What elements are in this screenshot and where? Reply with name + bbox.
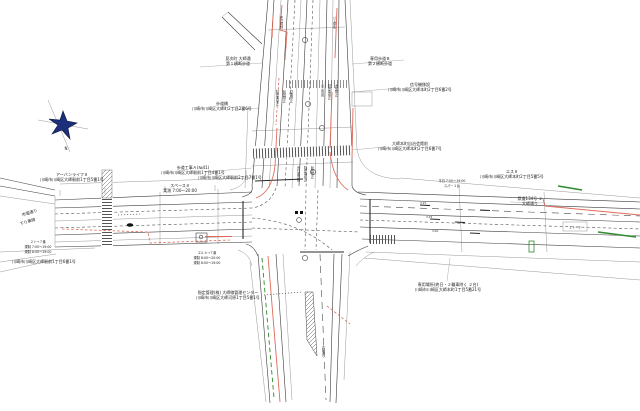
cad-geometry — [366, 252, 640, 262]
label-space-hours: 実測 7:00〜20:00 — [163, 187, 197, 193]
lane-text-v6: 大型禁止 — [334, 83, 338, 97]
cad-geometry — [0, 196, 55, 204]
road-plan-canvas: N 見次町 大師通 第１横断歩道 専用歩道Ｂ 第２横断歩道 信号機移設 川崎市川… — [0, 0, 640, 411]
cad-geometry — [55, 192, 252, 200]
cad-geometry — [302, 255, 307, 260]
label-reserved-s2: 川崎市川崎区大師本町1丁目5番21号 — [415, 286, 481, 292]
label-hours-o1: 平日 7:00〜19:00 — [439, 179, 466, 183]
label-reg-k2: 規制 7:00〜19:00 — [25, 244, 52, 249]
cad-geometry — [272, 16, 273, 38]
cad-geometry — [199, 235, 203, 239]
lane-text-v9: 転回禁止 — [310, 166, 314, 179]
annotations: 見次町 大師通 第１横断歩道 専用歩道Ｂ 第２横断歩道 信号機移設 川崎市川崎区… — [12, 15, 581, 359]
cad-geometry — [455, 222, 465, 223]
west-crosswalk — [102, 198, 112, 246]
cad-geometry — [238, 250, 252, 266]
cad-geometry — [352, 108, 353, 158]
cad-geometry — [357, 150, 400, 179]
cad-geometry — [246, 244, 258, 256]
center-symbol — [300, 211, 303, 214]
cad-geometry — [299, 0, 307, 186]
cad-geometry — [470, 233, 480, 234]
cad-geometry — [360, 227, 640, 236]
cad-geometry — [55, 202, 252, 208]
cad-geometry — [297, 218, 302, 223]
cad-geometry — [336, 254, 342, 403]
cad-geometry — [0, 186, 55, 196]
cad-geometry — [320, 254, 326, 400]
cad-geometry — [230, 170, 246, 190]
cad-geometry — [558, 186, 582, 190]
plan-drawing: N 見次町 大師通 第１横断歩道 専用歩道Ｂ 第２横断歩道 信号機移設 川崎市川… — [0, 0, 640, 411]
cad-geometry — [327, 306, 350, 324]
cad-geometry — [430, 219, 440, 220]
cad-geometry — [364, 258, 640, 280]
cad-geometry — [305, 101, 310, 106]
cad-geometry — [420, 205, 430, 206]
cad-geometry — [480, 210, 490, 211]
lane-text-v8: 駐停車禁止 — [303, 165, 307, 182]
cad-geometry — [348, 246, 368, 256]
cad-geometry — [118, 214, 140, 215]
label-reg-m3: 規制 8:00〜19:00 — [194, 260, 221, 265]
label-addr-l: 川崎市川崎区大師駅前1丁目6番1号 — [12, 258, 76, 264]
north-tick-row — [284, 80, 348, 88]
cad-geometry — [55, 229, 252, 235]
east-road — [357, 150, 640, 280]
lane-text-v3: 駐車禁止 — [289, 89, 293, 103]
lane-text-v7: 歩行者専用 — [296, 165, 300, 183]
cad-geometry — [544, 192, 547, 252]
cad-geometry — [360, 220, 640, 229]
cad-geometry — [256, 128, 277, 198]
label-shop-p-addr: 川崎市川崎区大師本町2丁目5番5号 — [480, 173, 544, 179]
cad-geometry — [305, 190, 306, 250]
label-reg-m2: 規制 8:00〜20:00 — [194, 255, 221, 260]
east-zebra — [370, 235, 396, 244]
label-reg-k1: ２ト→７番 — [30, 239, 46, 244]
compass-rose: N — [38, 100, 88, 152]
bus-marking — [127, 223, 133, 227]
cad-geometry — [362, 239, 640, 248]
lane-text-v5: 駐停車禁止 — [327, 83, 331, 100]
cad-geometry — [55, 215, 252, 221]
cad-geometry — [344, 252, 350, 380]
cad-geometry — [55, 222, 252, 228]
channel-island — [305, 292, 317, 356]
cad-geometry — [316, 190, 318, 250]
cad-geometry — [356, 252, 374, 266]
cad-geometry — [252, 228, 360, 232]
label-reg-k3: 規制 8:00〜19:00 — [25, 249, 52, 254]
leader-lines — [200, 60, 545, 281]
cad-geometry — [264, 292, 302, 295]
cad-geometry — [55, 208, 252, 214]
label-shiden-dori: 市電通り — [21, 207, 38, 218]
label-hours-o2: スパー１台 — [444, 183, 460, 188]
label-center-addr: 川崎市川崎区大師河原1丁目5番1号 — [196, 294, 260, 300]
cad-geometry — [252, 188, 276, 208]
cad-geometry — [252, 218, 332, 250]
label-hall-addr: 川崎市川崎区大師本町2丁目6番7号 — [378, 145, 442, 151]
cad-geometry — [268, 256, 280, 402]
lane-width-w3: 3.00 — [432, 229, 438, 233]
cad-geometry — [222, 12, 228, 17]
cad-geometry — [360, 213, 640, 222]
cad-geometry — [55, 242, 252, 247]
label-crosswalk2: 第２横断歩道 — [368, 60, 392, 66]
lane-text-v2: 転回禁止 — [282, 90, 286, 103]
lane-text-v1: 駐停車禁止 — [275, 89, 279, 106]
cad-geometry — [447, 258, 450, 281]
lane-text-v12: 大師通り — [321, 344, 325, 359]
label-footbridge-addr: 川崎市川崎区大師町2丁目2番6号 — [192, 105, 252, 111]
label-urbanlife-addr: 川崎市川崎区大師駅前1丁目5番1号 — [40, 176, 104, 182]
cad-geometry — [242, 186, 252, 197]
north-star-icon — [49, 111, 77, 139]
label-signal-move-addr: 川崎市川崎区大師本町2丁目6番2号 — [388, 86, 452, 92]
south-road — [250, 252, 350, 403]
lane-width-w2: 3.25 — [426, 215, 432, 219]
label-down-lane: 下り車線 — [19, 216, 36, 227]
lane-text-v4: バス専用 — [320, 84, 324, 98]
cad-geometry — [330, 254, 334, 402]
green-post — [529, 241, 534, 252]
compass-n-label: N — [65, 146, 68, 151]
label-reg-m1: エル４→７番 — [198, 250, 217, 255]
center-symbol — [295, 211, 298, 214]
label-crosswalk1: 第１横断歩道 — [226, 60, 250, 66]
cad-geometry — [330, 92, 332, 148]
cad-geometry — [345, 0, 352, 186]
cad-geometry — [352, 186, 366, 195]
label-note-box: ２ト−３ — [569, 226, 581, 230]
label-daishi-dori: 大師通り — [522, 200, 538, 206]
cad-geometry — [598, 232, 636, 237]
label-works-addr: 川崎市川崎区大師駅前1丁目4番1号 — [161, 169, 225, 175]
lane-text-v10: 終日規制 — [279, 15, 283, 30]
west-island — [102, 170, 112, 198]
lane-width-w1: 3.25 — [420, 201, 426, 205]
lane-text-v11: バス優先 — [332, 16, 336, 30]
cad-geometry — [250, 262, 266, 402]
